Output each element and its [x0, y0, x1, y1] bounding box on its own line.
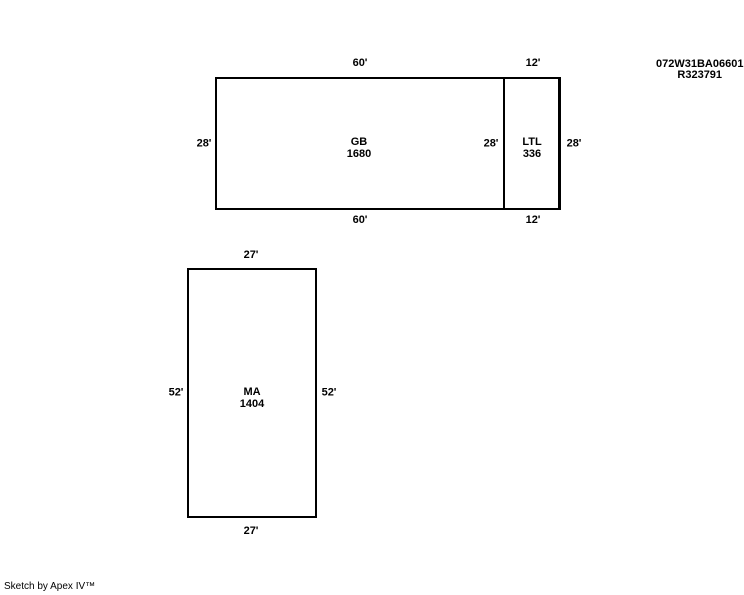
area-size-gb: 1680	[347, 148, 371, 160]
area-label-ltl: LTL 336	[522, 136, 541, 160]
dim-label-ltl-right: 28'	[567, 139, 582, 150]
area-code-gb: GB	[347, 136, 371, 148]
dim-label-ma-right: 52'	[322, 388, 337, 399]
footer-branding: Sketch by Apex IV™	[4, 581, 95, 592]
dim-label-gb-right: 28'	[484, 139, 499, 150]
building-outline-gb-ltl	[215, 77, 561, 210]
gb-ltl-divider-wall	[503, 77, 505, 210]
record-number: R323791	[656, 70, 743, 81]
dim-label-ltl-top: 12'	[526, 58, 541, 69]
area-code-ltl: LTL	[522, 136, 541, 148]
dim-label-gb-bottom: 60'	[353, 215, 368, 226]
dim-label-ltl-bottom: 12'	[526, 215, 541, 226]
parcel-header: 072W31BA06601 R323791	[656, 59, 743, 81]
area-size-ltl: 336	[522, 148, 541, 160]
dim-label-gb-left: 28'	[197, 139, 212, 150]
area-size-ma: 1404	[240, 398, 264, 410]
dim-label-ma-bottom: 27'	[244, 526, 259, 537]
area-label-gb: GB 1680	[347, 136, 371, 160]
area-code-ma: MA	[240, 386, 264, 398]
sketch-page: 072W31BA06601 R323791 60' 60' 28' 28' 12…	[0, 0, 744, 595]
dim-label-ma-top: 27'	[244, 250, 259, 261]
area-label-ma: MA 1404	[240, 386, 264, 410]
dim-label-gb-top: 60'	[353, 58, 368, 69]
dim-label-ma-left: 52'	[169, 388, 184, 399]
